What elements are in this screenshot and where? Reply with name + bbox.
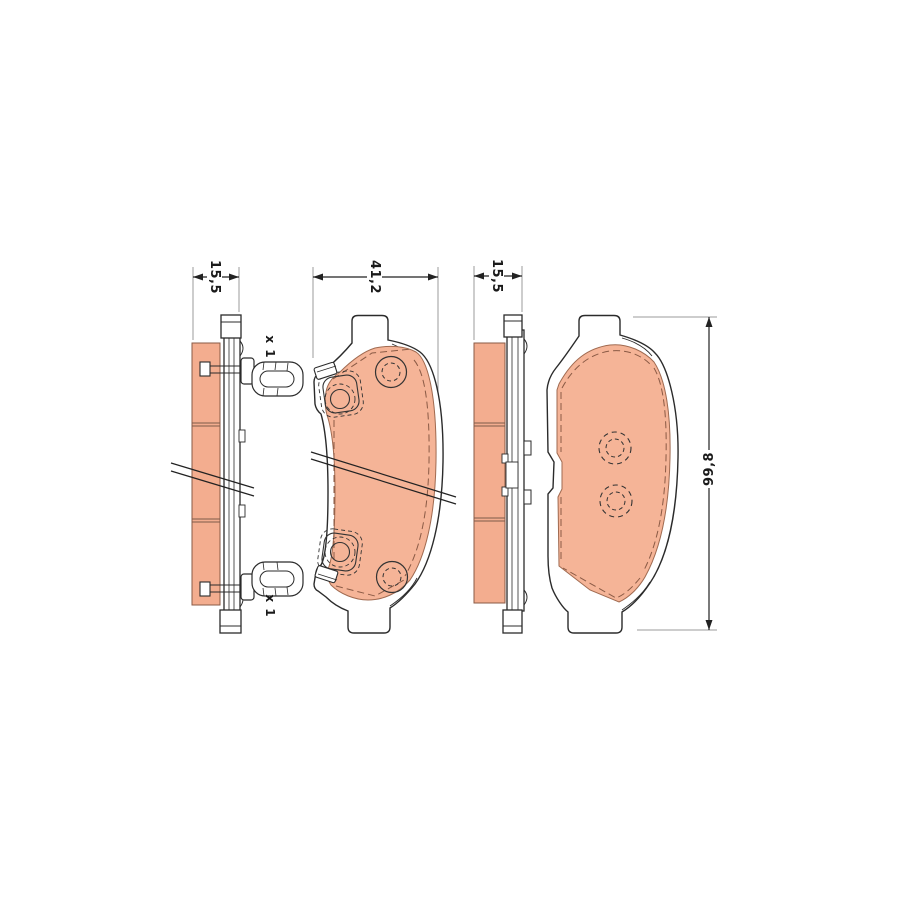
friction-material [474,343,505,603]
clip-quantity-label-top: x 1 [263,335,277,358]
dimension-label: 15,5 [489,259,504,293]
dimension-label: 41,2 [367,260,382,294]
pad-front-view-inner: 41,2 [311,258,456,633]
pad-front-view-outer: 99,8 [547,316,717,634]
clip-quantity-label-bottom: x 1 [263,594,277,617]
dimension-label: 15,5 [207,260,222,294]
drawing-canvas: 15,5 [0,0,900,900]
pad-side-view-with-clips: 15,5 [171,258,303,633]
pad-side-view-plain: 15,5 [474,257,531,633]
backing-plate [502,315,531,633]
dimension-label: 99,8 [702,452,717,486]
brake-pad-technical-drawing: 15,5 [0,0,900,900]
